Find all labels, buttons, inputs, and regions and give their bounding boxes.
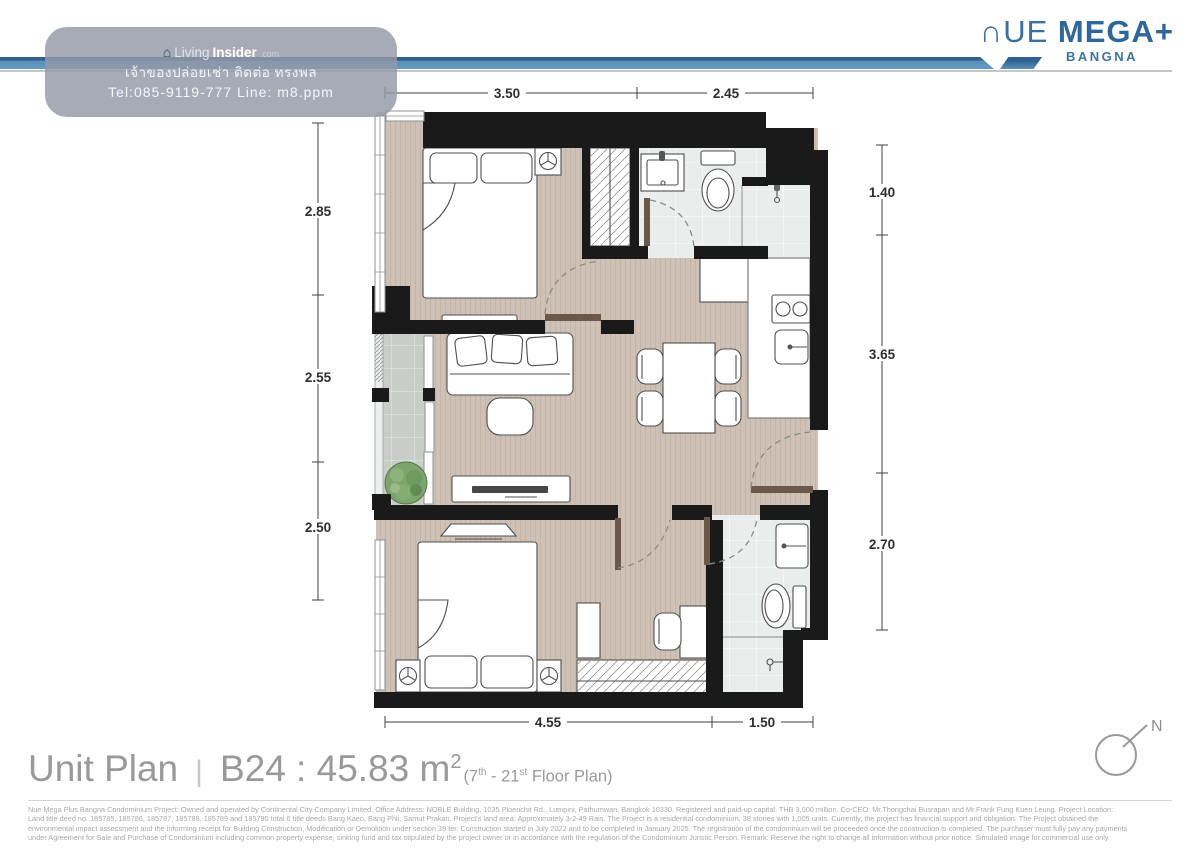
- toilet-1: [701, 151, 735, 211]
- dim-top-2: 2.45: [713, 86, 740, 101]
- bathroom1-door-leaf: [644, 198, 650, 246]
- kitchen-sink: [775, 330, 808, 364]
- sofa: [447, 333, 573, 395]
- north-compass-icon: N: [1078, 710, 1178, 790]
- dim-bottom-2: 1.50: [749, 715, 775, 730]
- coffee-table: [487, 398, 533, 435]
- brand-name-light: ∩UE: [980, 14, 1048, 49]
- watermark-overlay: ⌂ LivingInsider.com เจ้าของปล่อยเช่า ติด…: [45, 27, 397, 117]
- bedroom2-door-leaf: [615, 518, 621, 570]
- sink-2: [776, 524, 808, 568]
- dining-chair: [637, 391, 663, 426]
- footer-rule: [28, 800, 1172, 801]
- north-label: N: [1151, 718, 1163, 735]
- unit-code-area: B24 : 45.83 m: [220, 748, 450, 790]
- brand-logo: ∩UE MEGA+ BANGNA: [980, 16, 1174, 64]
- pillow: [425, 656, 477, 688]
- sliding-door-panel: [425, 402, 434, 452]
- brand-name: ∩UE MEGA+: [980, 16, 1174, 48]
- desk: [680, 606, 707, 658]
- legal-disclaimer: Nue Mega Plus Bangna Condominium Project…: [28, 805, 1178, 843]
- brand-subtitle: BANGNA: [980, 49, 1138, 64]
- tv-console: [452, 476, 570, 502]
- brand-name-bold: MEGA+: [1058, 14, 1174, 49]
- dim-right-1: 1.40: [869, 185, 895, 200]
- bedroom2-window: [375, 540, 385, 690]
- bedroom1-door-leaf: [545, 314, 601, 321]
- pillow: [481, 656, 533, 688]
- dim-left-2: 2.55: [305, 370, 332, 385]
- footer-title: Unit Plan | B24 : 45.83 m 2 (7th - 21st …: [28, 748, 613, 790]
- dining-chair: [715, 349, 741, 384]
- sliding-door-panel: [424, 336, 433, 396]
- dining-chair: [637, 349, 663, 384]
- refrigerator: [700, 256, 748, 302]
- watermark-thai-line: เจ้าของปล่อยเช่า ติดต่อ ทรงพล: [125, 61, 317, 83]
- area-superscript: 2: [450, 751, 461, 774]
- cabinet: [577, 603, 600, 658]
- plant: [385, 462, 427, 504]
- pillow: [430, 153, 477, 183]
- page-title: Unit Plan: [28, 748, 178, 790]
- watermark-contact-line: Tel:085-9119-777 Line: m8.ppm: [108, 84, 334, 100]
- desk-chair: [654, 613, 681, 650]
- toilet-2: [762, 584, 806, 628]
- dining-chair: [715, 391, 741, 426]
- legal-line: environmental impact assessment and the …: [28, 824, 1178, 833]
- ac-ledge: [375, 334, 383, 382]
- wardrobe-1: [590, 148, 630, 246]
- legal-line: Nue Mega Plus Bangna Condominium Project…: [28, 805, 1178, 814]
- watermark-logo: ⌂ LivingInsider.com: [163, 44, 280, 60]
- corner-window: [386, 111, 424, 121]
- dim-right-2: 3.65: [869, 347, 896, 362]
- dim-bottom-1: 4.55: [535, 715, 562, 730]
- floor-range-note: (7th - 21st Floor Plan): [463, 767, 612, 787]
- dim-top-1: 3.50: [494, 86, 520, 101]
- unit-plan-page: ∩UE MEGA+ BANGNA ⌂ LivingInsider.com เจ้…: [0, 0, 1200, 848]
- legal-line: Land title deed no. 185785, 185786, 1857…: [28, 814, 1178, 823]
- bathroom2-door-leaf: [704, 517, 710, 565]
- bedroom1-window: [375, 116, 385, 312]
- dim-right-3: 2.70: [869, 537, 895, 552]
- watermark-logo-light: Living: [174, 45, 209, 60]
- entry-door-leaf: [751, 486, 813, 493]
- dim-left-1: 2.85: [305, 204, 332, 219]
- dining-table: [663, 343, 715, 433]
- legal-line: under Agreement for Sale and Purchase of…: [28, 833, 1178, 842]
- dimension-line-top: [385, 87, 813, 99]
- livinginsider-logo-icon: ⌂: [163, 44, 171, 60]
- title-divider: |: [195, 755, 203, 789]
- watermark-logo-suffix: .com: [260, 49, 280, 59]
- watermark-logo-bold: Insider: [212, 45, 256, 60]
- pillow: [481, 153, 532, 183]
- dim-left-3: 2.50: [305, 520, 331, 535]
- faucet: [659, 151, 665, 161]
- floor-plan: 3.50 2.45 2.85 2.55 2.50 1.40 3.65 2.70 …: [280, 80, 940, 740]
- tv: [472, 486, 548, 493]
